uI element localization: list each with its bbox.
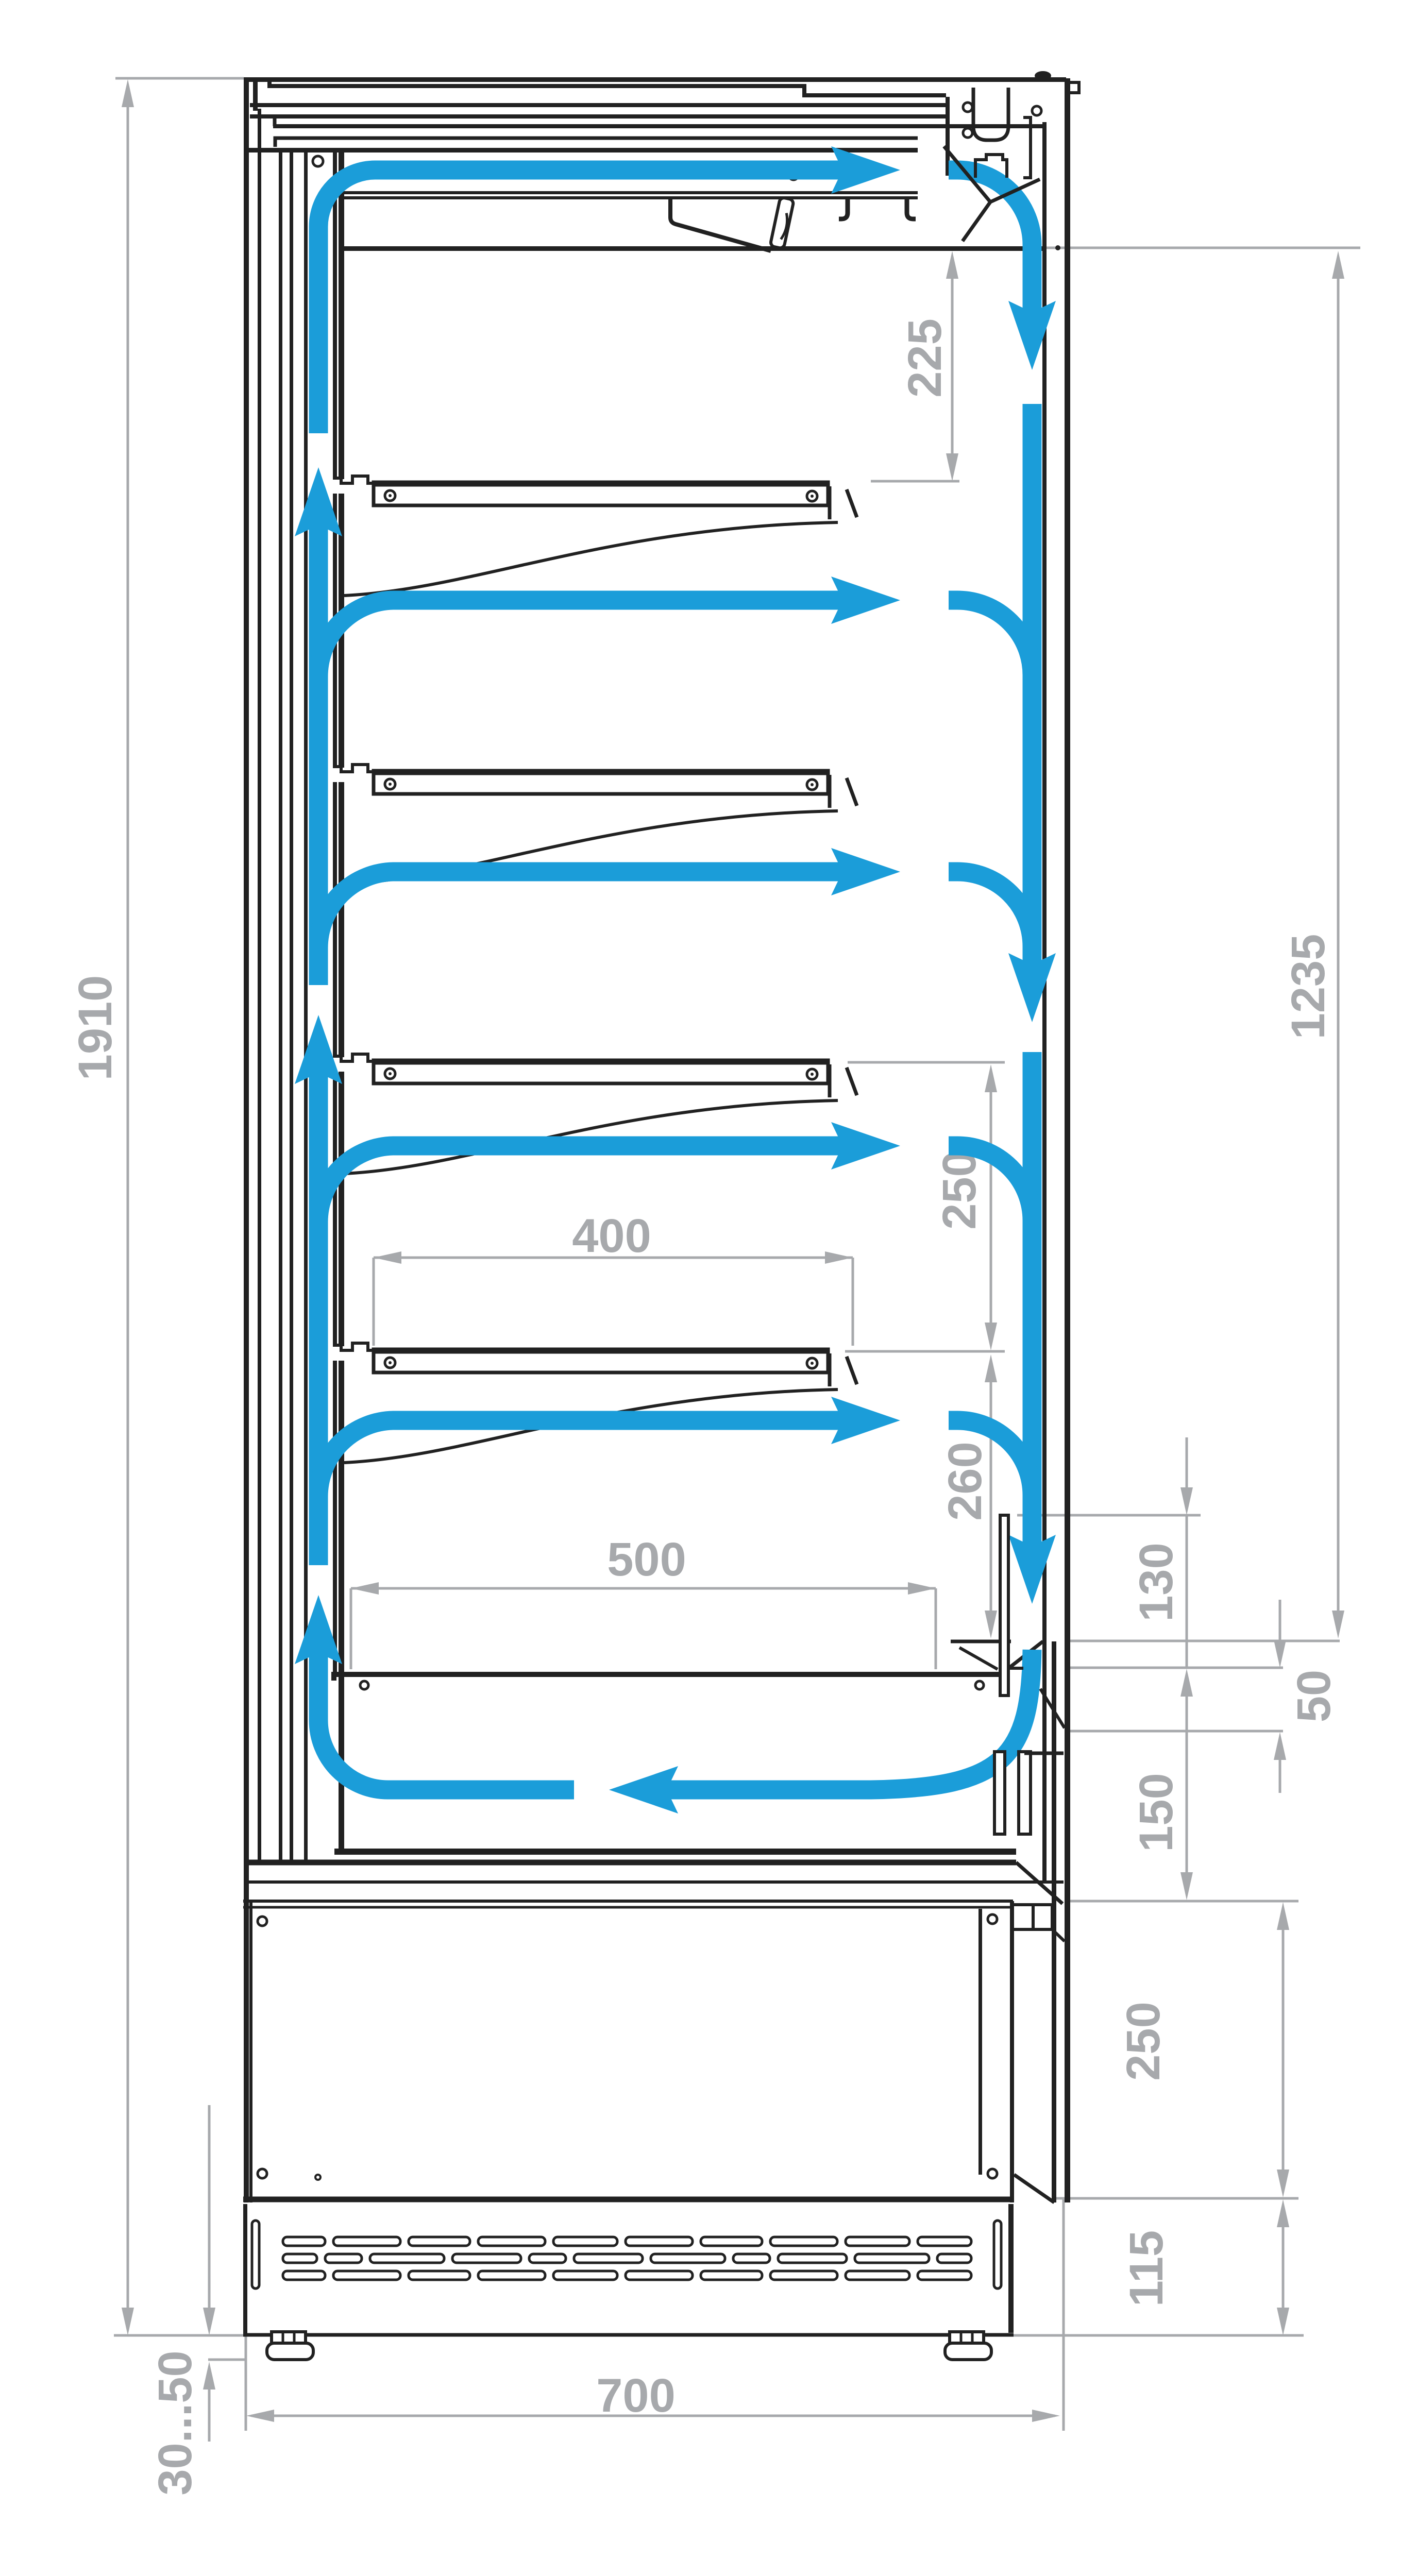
svg-text:150: 150 [1130, 1773, 1183, 1852]
svg-text:1910: 1910 [69, 975, 122, 1081]
svg-text:115: 115 [1120, 2230, 1173, 2307]
svg-text:1235: 1235 [1282, 934, 1335, 1040]
svg-text:260: 260 [939, 1442, 991, 1521]
svg-text:50: 50 [1288, 1670, 1340, 1722]
svg-text:250: 250 [1117, 2002, 1170, 2081]
svg-text:700: 700 [596, 2369, 676, 2422]
svg-text:130: 130 [1130, 1543, 1183, 1622]
svg-text:250: 250 [933, 1150, 986, 1230]
svg-text:30...50: 30...50 [149, 2350, 201, 2495]
svg-text:400: 400 [572, 1210, 651, 1262]
svg-text:225: 225 [899, 318, 951, 398]
svg-text:500: 500 [607, 1533, 686, 1586]
